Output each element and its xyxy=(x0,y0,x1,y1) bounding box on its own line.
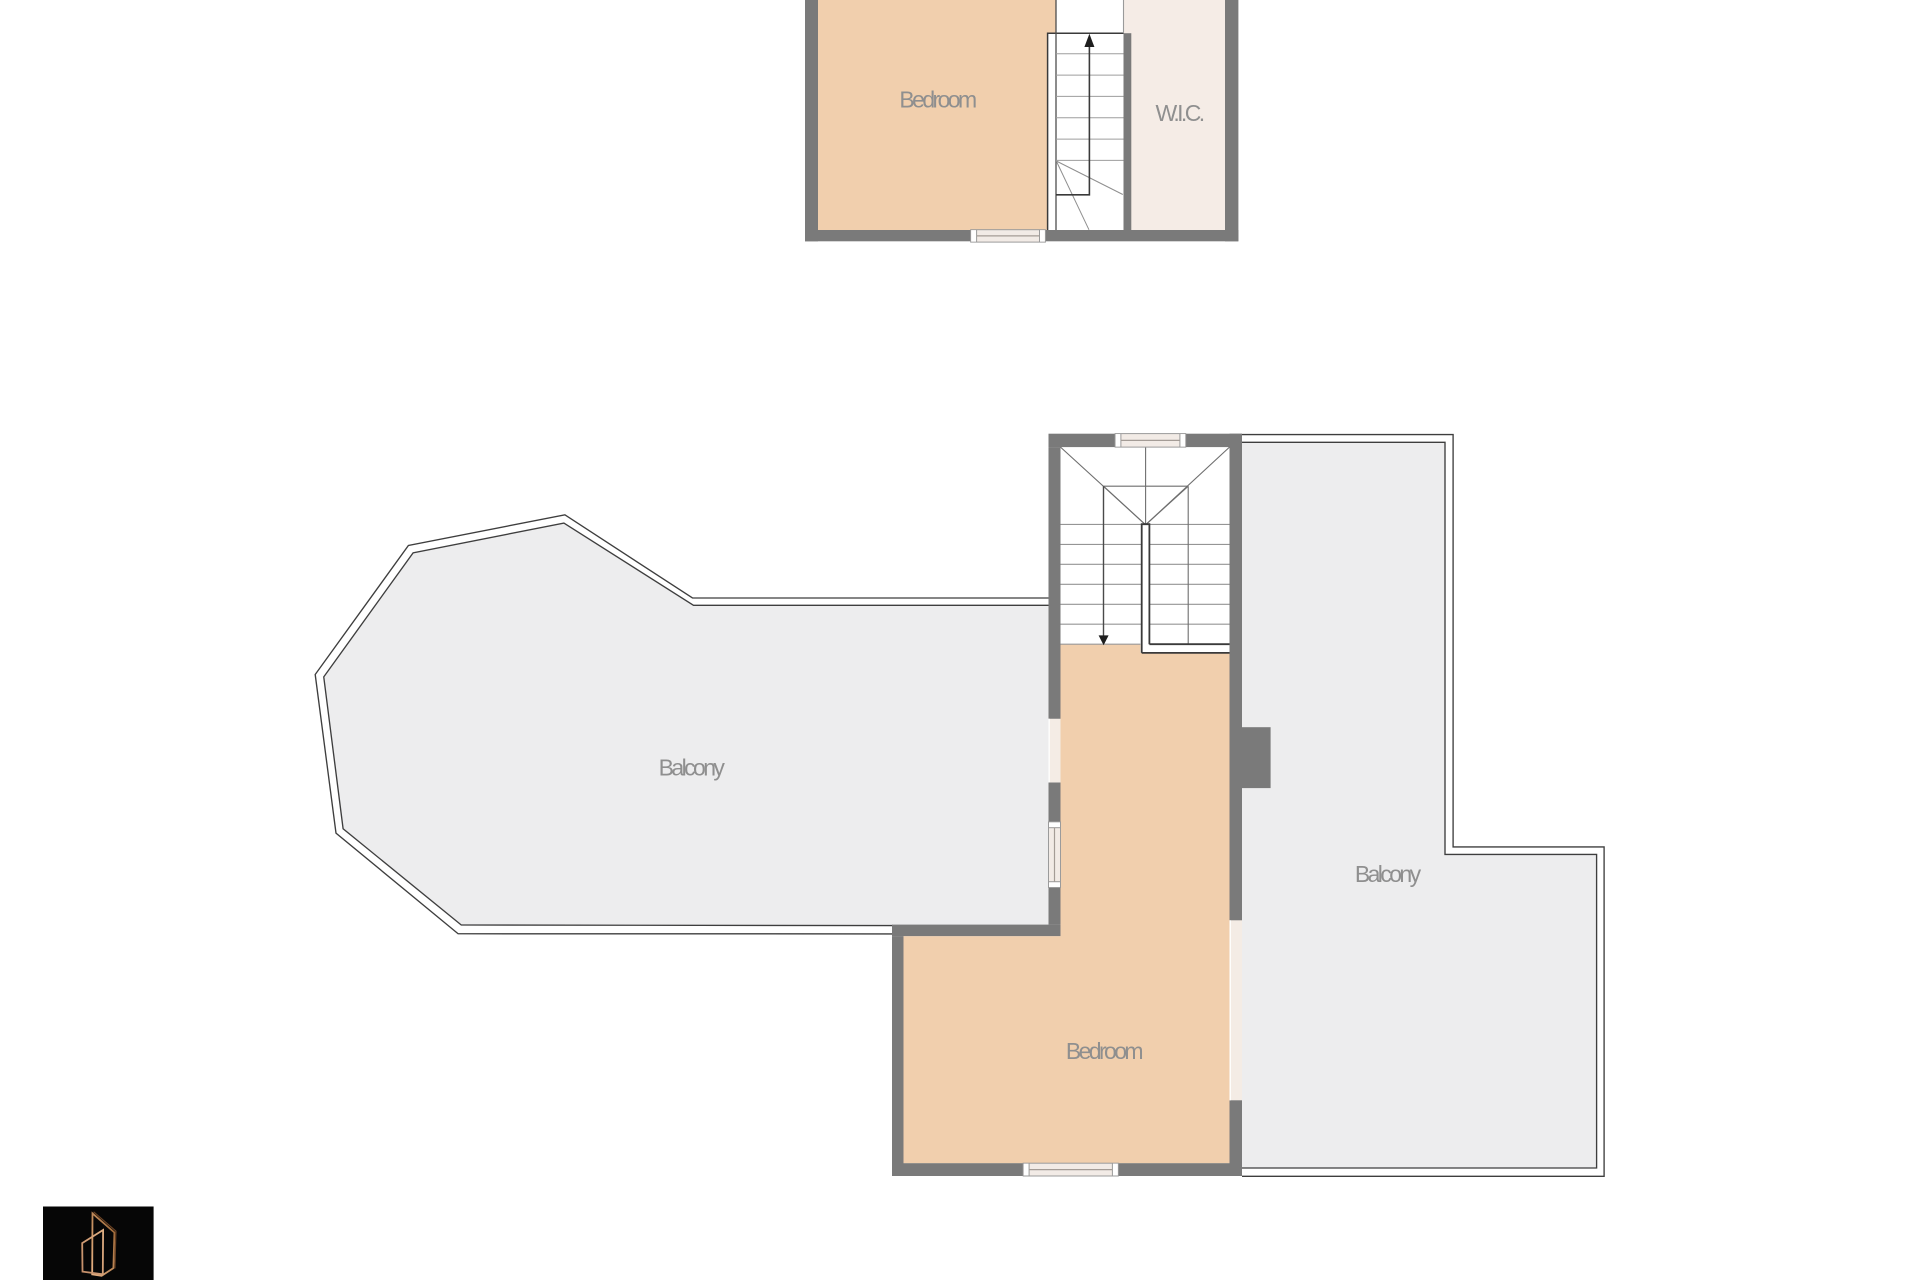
svg-text:Bedroom: Bedroom xyxy=(899,87,976,113)
svg-text:Balcony: Balcony xyxy=(1355,861,1422,887)
svg-text:Balcony: Balcony xyxy=(659,754,726,780)
svg-text:W.I.C.: W.I.C. xyxy=(1155,100,1203,126)
svg-text:Bedroom: Bedroom xyxy=(1066,1038,1143,1064)
